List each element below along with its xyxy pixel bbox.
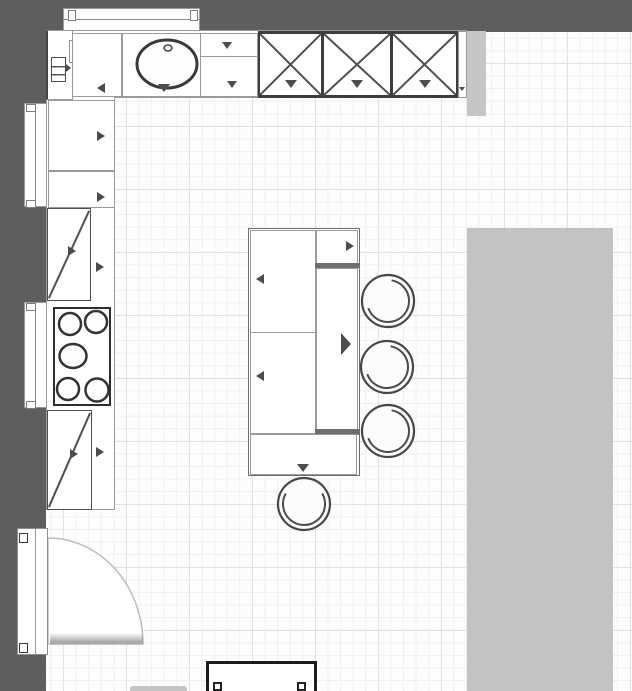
object-edge-bottom-left xyxy=(130,686,187,691)
floor-plan-canvas xyxy=(0,0,632,691)
door-swing-arc xyxy=(46,530,146,648)
arrow-down-icon xyxy=(459,87,465,91)
arrow-right-icon xyxy=(66,64,71,72)
window-left-upper[interactable] xyxy=(24,103,48,207)
window-end-cap xyxy=(26,401,36,409)
cabinet-divider xyxy=(251,332,315,333)
arrow-left-icon xyxy=(256,371,264,381)
tall-cabinet-x[interactable] xyxy=(322,31,392,98)
arrow-down-icon xyxy=(222,42,232,49)
bar-stool[interactable] xyxy=(357,337,417,397)
bar-stool[interactable] xyxy=(358,271,418,331)
arrow-down-icon xyxy=(227,81,237,88)
island-door-cabinets[interactable] xyxy=(250,230,316,434)
window-end-cap xyxy=(68,10,76,21)
window-end-cap xyxy=(190,10,198,21)
arrow-right-icon xyxy=(97,192,105,202)
arrow-right-icon xyxy=(341,333,351,355)
window-mullion xyxy=(64,19,199,20)
arrow-left-icon xyxy=(256,274,264,284)
bench-knob-icon xyxy=(297,682,306,691)
arrow-right-icon xyxy=(96,447,104,457)
window-end-cap xyxy=(26,104,36,112)
area-block[interactable] xyxy=(467,228,613,691)
tall-cabinet-x[interactable] xyxy=(258,31,323,98)
entry-door[interactable] xyxy=(17,528,48,655)
bar-stool[interactable] xyxy=(358,401,418,461)
door-leaf-shadow xyxy=(50,633,143,645)
arrow-down-icon xyxy=(419,80,431,88)
tall-diagonal-cabinet[interactable] xyxy=(47,410,92,510)
wall-stub[interactable] xyxy=(467,31,486,116)
window-end-cap xyxy=(26,200,36,208)
cabinet-divider xyxy=(201,56,257,57)
arrow-right-icon xyxy=(346,241,354,251)
arrow-down-icon xyxy=(158,84,170,92)
window-end-cap xyxy=(26,303,36,311)
arrow-down-icon xyxy=(351,80,363,88)
tall-cabinet-x[interactable] xyxy=(391,31,458,98)
appliance-symbol-icon xyxy=(51,57,66,82)
island-counter-panel[interactable] xyxy=(316,268,358,431)
bench-knob-icon xyxy=(213,682,222,691)
base-cabinet[interactable] xyxy=(48,171,115,208)
door-hinge-icon xyxy=(19,533,28,543)
diagonal-symbol-icon xyxy=(48,411,91,509)
arrow-right-icon xyxy=(68,246,76,256)
window-mullion xyxy=(35,303,36,407)
window-top[interactable] xyxy=(63,8,200,32)
arrow-right-icon xyxy=(70,449,78,459)
window-left-lower[interactable] xyxy=(24,302,48,408)
window-mullion xyxy=(35,104,36,206)
arrow-down-icon xyxy=(285,80,297,88)
arrow-left-icon xyxy=(97,83,105,93)
door-hinge-icon xyxy=(19,643,28,653)
cooktop[interactable] xyxy=(53,307,111,406)
arrow-right-icon xyxy=(96,262,104,272)
arrow-right-icon xyxy=(97,131,105,141)
cooktop-burners-icon xyxy=(53,307,111,406)
door-frame-line xyxy=(35,529,36,654)
